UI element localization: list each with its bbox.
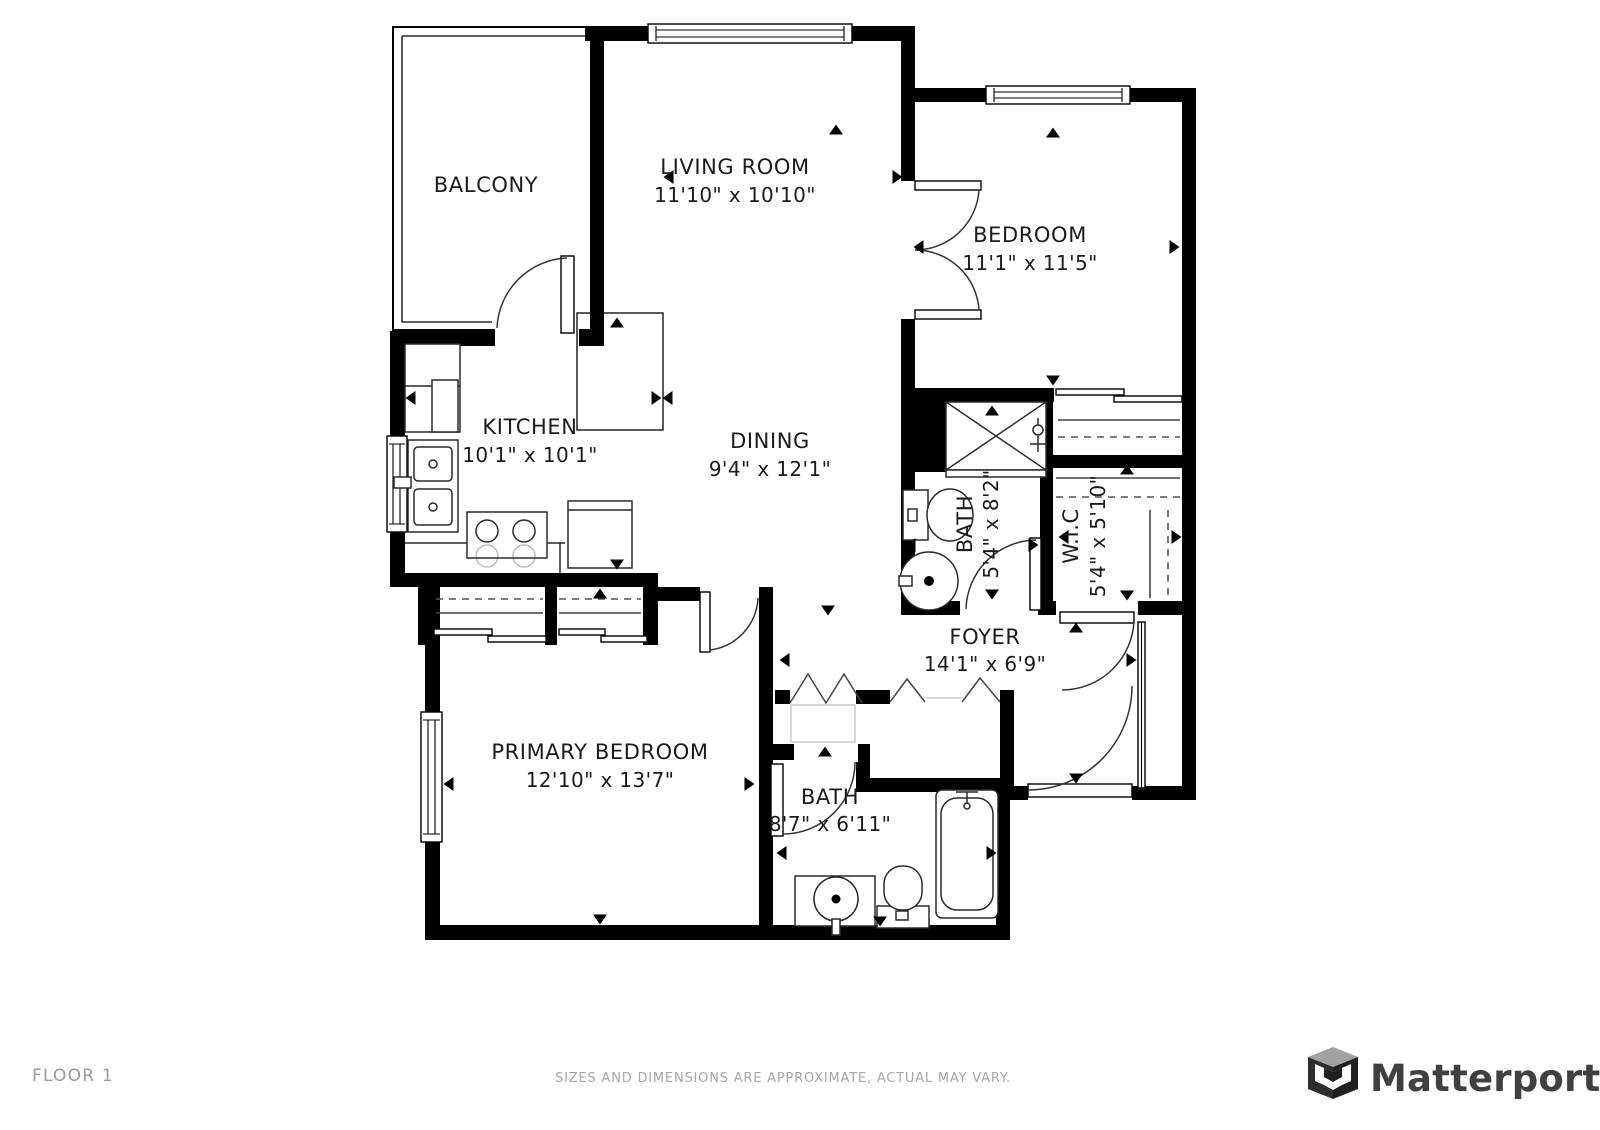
svg-text:BATH: BATH (953, 495, 977, 553)
floor-plan: BALCONY LIVING ROOM 11'10" x 10'10" BEDR… (0, 0, 1600, 1130)
floor-label: FLOOR 1 (32, 1066, 114, 1086)
vanity-2 (795, 876, 875, 935)
disclaimer: SIZES AND DIMENSIONS ARE APPROXIMATE, AC… (555, 1071, 1011, 1086)
svg-text:PRIMARY BEDROOM: PRIMARY BEDROOM (491, 740, 708, 764)
room-label-foyer: FOYER 14'1" x 6'9" (924, 625, 1046, 676)
room-label-wic: W.I.C 5'4" x 5'10" (1059, 475, 1110, 597)
primary-bedroom-window (421, 712, 442, 842)
balcony-door (497, 256, 574, 333)
entry-door (1028, 686, 1132, 797)
svg-text:11'1" x 11'5": 11'1" x 11'5" (962, 251, 1098, 275)
room-label-bath2: BATH 8'7" x 6'11" (769, 785, 891, 836)
matterport-logo: Matterport (1308, 1047, 1600, 1100)
room-label-bath1: BATH 5'4" x 8'2" (953, 469, 1003, 578)
svg-text:9'4" x 12'1": 9'4" x 12'1" (709, 457, 831, 481)
entry-sidelight (1138, 622, 1145, 788)
room-label-bedroom: BEDROOM 11'1" x 11'5" (962, 223, 1098, 275)
stove (467, 512, 547, 567)
bedroom-french-doors (915, 181, 981, 319)
room-label-living-room: LIVING ROOM 11'10" x 10'10" (654, 155, 816, 207)
svg-text:DINING: DINING (730, 429, 810, 453)
room-label-balcony: BALCONY (434, 173, 538, 197)
matterport-icon (1308, 1047, 1358, 1099)
room-label-primary-bedroom: PRIMARY BEDROOM 12'10" x 13'7" (491, 740, 708, 792)
svg-text:11'10" x 10'10": 11'10" x 10'10" (654, 183, 816, 207)
svg-text:BATH: BATH (801, 785, 859, 809)
bedroom-window (986, 86, 1130, 104)
bifold-door-marks (790, 674, 1000, 703)
svg-text:KITCHEN: KITCHEN (482, 415, 577, 439)
svg-text:FOYER: FOYER (949, 625, 1020, 649)
dishwasher (568, 501, 632, 568)
svg-text:5'4" x 5'10": 5'4" x 5'10" (1086, 475, 1110, 597)
svg-text:LIVING ROOM: LIVING ROOM (660, 155, 809, 179)
footer: FLOOR 1 SIZES AND DIMENSIONS ARE APPROXI… (32, 1047, 1600, 1100)
living-room-window (648, 24, 852, 43)
sink-1 (899, 552, 958, 610)
wic-door (1060, 612, 1134, 690)
room-label-dining: DINING 9'4" x 12'1" (709, 429, 831, 481)
svg-text:12'10" x 13'7": 12'10" x 13'7" (526, 768, 675, 792)
primary-bedroom-door (700, 592, 758, 652)
svg-text:BALCONY: BALCONY (434, 173, 538, 197)
svg-text:W.I.C: W.I.C (1059, 508, 1083, 564)
room-label-kitchen: KITCHEN 10'1" x 10'1" (462, 415, 598, 467)
svg-text:10'1" x 10'1": 10'1" x 10'1" (462, 443, 598, 467)
svg-text:8'7" x 6'11": 8'7" x 6'11" (769, 812, 891, 836)
svg-text:5'4" x 8'2": 5'4" x 8'2" (979, 469, 1003, 578)
svg-text:14'1" x 6'9": 14'1" x 6'9" (924, 652, 1046, 676)
svg-text:BEDROOM: BEDROOM (973, 223, 1087, 247)
brand-text: Matterport (1370, 1057, 1600, 1100)
